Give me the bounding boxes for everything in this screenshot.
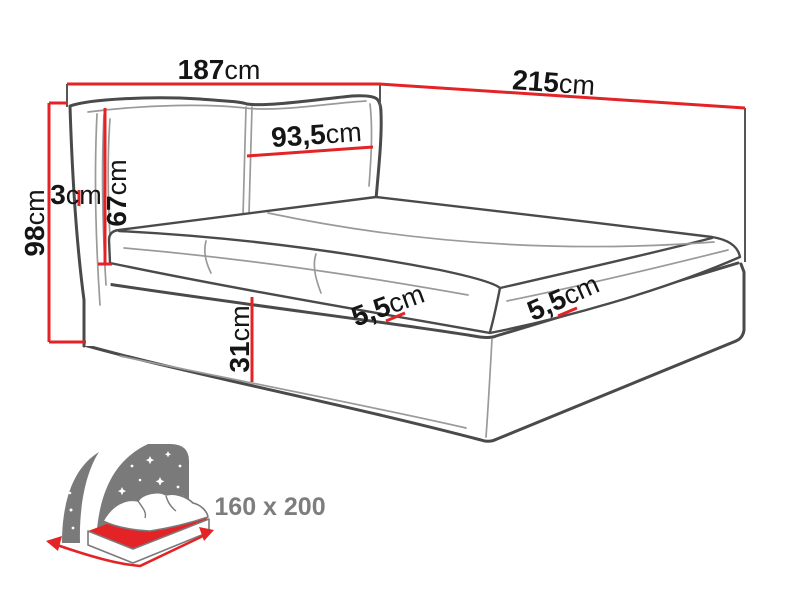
dim-total-height-label: 98cm <box>19 189 50 256</box>
storage-bed-badge: 160 x 200 <box>46 444 326 566</box>
mattress-size-label: 160 x 200 <box>214 493 325 521</box>
dim-pillow-width-label: 93,5cm <box>270 116 362 153</box>
diagram-canvas: 187cm 215cm 98cm 67cm 3cm 93,5cm 31cm 5,… <box>0 0 800 600</box>
dim-length-label: 215cm <box>511 64 596 101</box>
arrowhead-left <box>46 536 62 551</box>
dim-headboard-side-label: 3cm <box>50 179 102 210</box>
bed-drawing <box>70 96 744 441</box>
dim-headboard-height-label: 67cm <box>101 159 132 226</box>
dim-width-label: 187cm <box>178 54 261 85</box>
bed-dimension-diagram: 187cm 215cm 98cm 67cm 3cm 93,5cm 31cm 5,… <box>0 0 800 600</box>
dim-base-height-label: 31cm <box>224 305 255 372</box>
